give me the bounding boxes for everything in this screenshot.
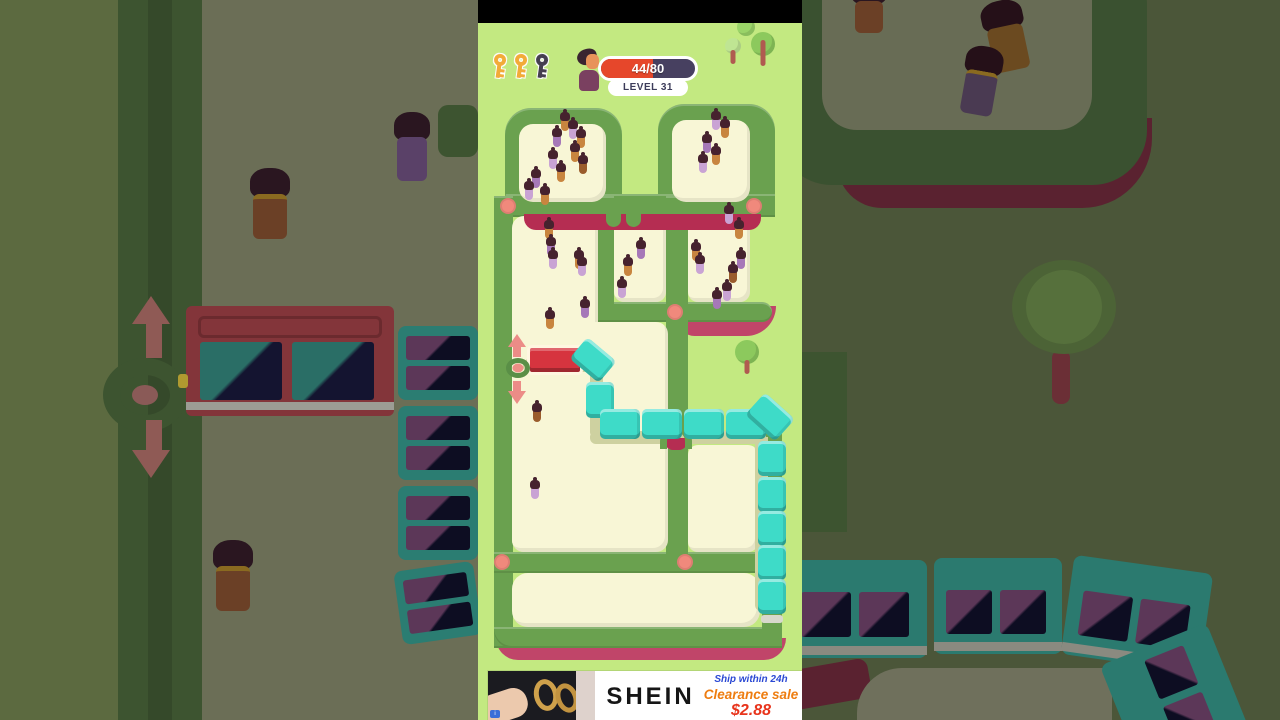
person-hair — [691, 242, 701, 251]
person-hair — [722, 282, 732, 291]
ad-banner[interactable]: i SHEIN Ship within 24h Clearance sale $… — [488, 671, 802, 720]
person-hair — [540, 186, 550, 195]
person-hair — [724, 205, 734, 214]
train-car[interactable] — [758, 579, 786, 614]
background-tree — [1012, 260, 1116, 354]
waiting-passenger[interactable] — [698, 154, 708, 174]
waiting-passenger[interactable] — [623, 257, 633, 277]
person-hair — [636, 240, 646, 249]
background-tree-trunk — [1052, 350, 1070, 404]
person-hair — [720, 119, 730, 128]
track-node — [677, 554, 693, 570]
train-car[interactable] — [758, 441, 786, 476]
track-node — [746, 198, 762, 214]
waiting-passenger[interactable] — [580, 299, 590, 319]
down-arrow-stem — [146, 420, 162, 452]
person-hair — [531, 169, 541, 178]
track-node — [667, 304, 683, 320]
waiting-passenger[interactable] — [734, 220, 744, 240]
train-car[interactable] — [600, 409, 640, 439]
background-field-corner — [857, 668, 1112, 720]
road-v2 — [666, 196, 688, 573]
background-panel-left — [0, 0, 478, 720]
person-hair — [546, 237, 556, 246]
direction-arrow-up[interactable] — [508, 334, 526, 358]
waiting-passenger[interactable] — [545, 310, 555, 330]
person-hair — [568, 120, 578, 129]
background-road-blob — [438, 105, 478, 157]
tree — [735, 340, 759, 364]
waiting-passenger[interactable] — [617, 279, 627, 299]
level-badge: LEVEL 31 — [608, 79, 688, 96]
train-window — [292, 342, 374, 400]
background-teal-car — [398, 406, 478, 480]
waiting-passenger[interactable] — [711, 146, 721, 166]
key-counter — [492, 54, 562, 84]
background-teal-car — [398, 326, 478, 400]
waiting-passenger[interactable] — [548, 250, 558, 270]
background-person — [394, 112, 430, 182]
person-hair — [623, 257, 633, 266]
top-black-bar — [478, 0, 802, 23]
waiting-passenger[interactable] — [577, 257, 587, 277]
direction-arrow-down[interactable] — [508, 380, 526, 404]
cell-right-low — [688, 445, 758, 552]
background-panel-right — [802, 0, 1280, 720]
waiting-passenger[interactable] — [720, 119, 730, 139]
person-hair — [570, 143, 580, 152]
background-red-train — [186, 306, 394, 416]
person-hair — [712, 290, 722, 299]
cell-bottom — [512, 573, 760, 627]
person-hair — [698, 154, 708, 163]
waiting-passenger[interactable] — [724, 205, 734, 225]
background-teal-car — [934, 558, 1062, 654]
person-hair — [552, 128, 562, 137]
background-road — [802, 352, 847, 532]
waiting-passenger[interactable] — [636, 240, 646, 260]
ad-photo: i — [488, 671, 595, 720]
person-hair — [702, 134, 712, 143]
person-hair — [736, 250, 746, 259]
background-person — [213, 540, 253, 612]
waiting-passenger[interactable] — [722, 282, 732, 302]
key-icon — [532, 53, 552, 82]
ad-sale-text: Clearance sale — [699, 687, 802, 702]
background-teal-car — [398, 486, 478, 560]
person-hair — [556, 163, 566, 172]
ad-price: $2.88 — [701, 702, 801, 720]
person-hair — [695, 255, 705, 264]
person-hair — [544, 220, 554, 229]
background-roundabout — [103, 358, 187, 432]
ad-info-icon[interactable]: i — [490, 710, 500, 718]
waiting-passenger[interactable] — [524, 181, 534, 201]
waiting-passenger[interactable] — [728, 264, 738, 284]
train-car[interactable] — [758, 545, 786, 580]
waiting-passenger[interactable] — [578, 155, 588, 175]
train-roof — [198, 316, 382, 338]
ad-brand: SHEIN — [593, 683, 708, 711]
train-light — [178, 374, 188, 388]
person-hair — [728, 264, 738, 273]
track-node — [500, 198, 516, 214]
train-car[interactable] — [761, 615, 783, 623]
key-icon — [511, 53, 531, 82]
train-window — [200, 342, 282, 400]
person-hair — [617, 279, 627, 288]
train-car[interactable] — [642, 409, 682, 439]
road-left-edge — [494, 196, 513, 648]
screenshot-root: 44/80 LEVEL 31 i SHEIN Ship within 24h C… — [0, 0, 1280, 720]
background-person — [250, 168, 290, 240]
background-teal-car — [802, 560, 927, 658]
ad-shipping-text: Ship within 24h — [701, 674, 801, 685]
person-hair — [545, 310, 555, 319]
track-node — [494, 554, 510, 570]
waiting-passenger[interactable] — [552, 128, 562, 148]
up-arrow-stem — [146, 322, 162, 358]
background-person — [852, 0, 886, 34]
train-car[interactable] — [758, 477, 786, 512]
direction-switch[interactable] — [506, 358, 530, 378]
progress-bar: 44/80 — [598, 56, 698, 81]
person-hair — [576, 129, 586, 138]
waiting-passenger[interactable] — [556, 163, 566, 183]
road-bottom-edge — [494, 627, 782, 648]
train-car[interactable] — [758, 511, 786, 546]
waiting-passenger[interactable] — [695, 255, 705, 275]
key-icon — [490, 53, 510, 82]
down-arrow-icon — [132, 450, 170, 478]
person-hair — [548, 150, 558, 159]
background-teal-car — [393, 561, 478, 645]
person-hair — [548, 250, 558, 259]
person-hair — [734, 220, 744, 229]
person-hair — [578, 155, 588, 164]
waiting-passenger[interactable] — [712, 290, 722, 310]
road-h3 — [494, 552, 782, 573]
game-viewport[interactable]: 44/80 LEVEL 31 i SHEIN Ship within 24h C… — [478, 0, 802, 720]
waiting-passenger[interactable] — [540, 186, 550, 206]
person-hair — [577, 257, 587, 266]
train-car[interactable] — [684, 409, 724, 439]
person-hair — [532, 403, 542, 412]
person-hair — [524, 181, 534, 190]
up-arrow-icon — [132, 296, 170, 324]
progress-label: 44/80 — [601, 59, 695, 78]
person-hair — [530, 480, 540, 489]
waiting-passenger[interactable] — [532, 403, 542, 423]
person-hair — [580, 299, 590, 308]
train-stripe — [186, 402, 394, 410]
waiting-passenger[interactable] — [530, 480, 540, 500]
person-hair — [711, 146, 721, 155]
